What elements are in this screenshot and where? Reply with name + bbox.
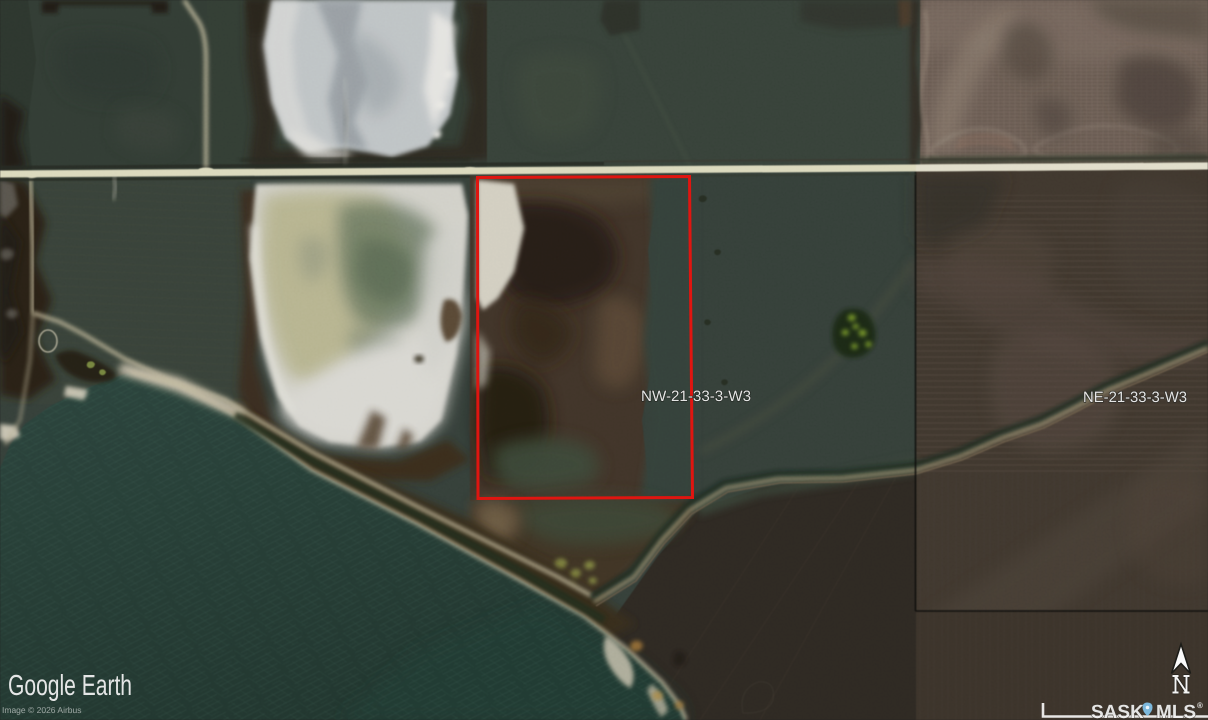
svg-text:SASK: SASK (1091, 702, 1144, 720)
svg-text:Image © 2026 Airbus: Image © 2026 Airbus (2, 705, 82, 715)
svg-text:MLS: MLS (1156, 702, 1196, 720)
svg-text:®: ® (1197, 701, 1203, 710)
svg-text:NE-21-33-3-W3: NE-21-33-3-W3 (1083, 389, 1187, 406)
svg-text:NW-21-33-3-W3: NW-21-33-3-W3 (641, 388, 751, 405)
svg-text:Google Earth: Google Earth (8, 670, 132, 702)
